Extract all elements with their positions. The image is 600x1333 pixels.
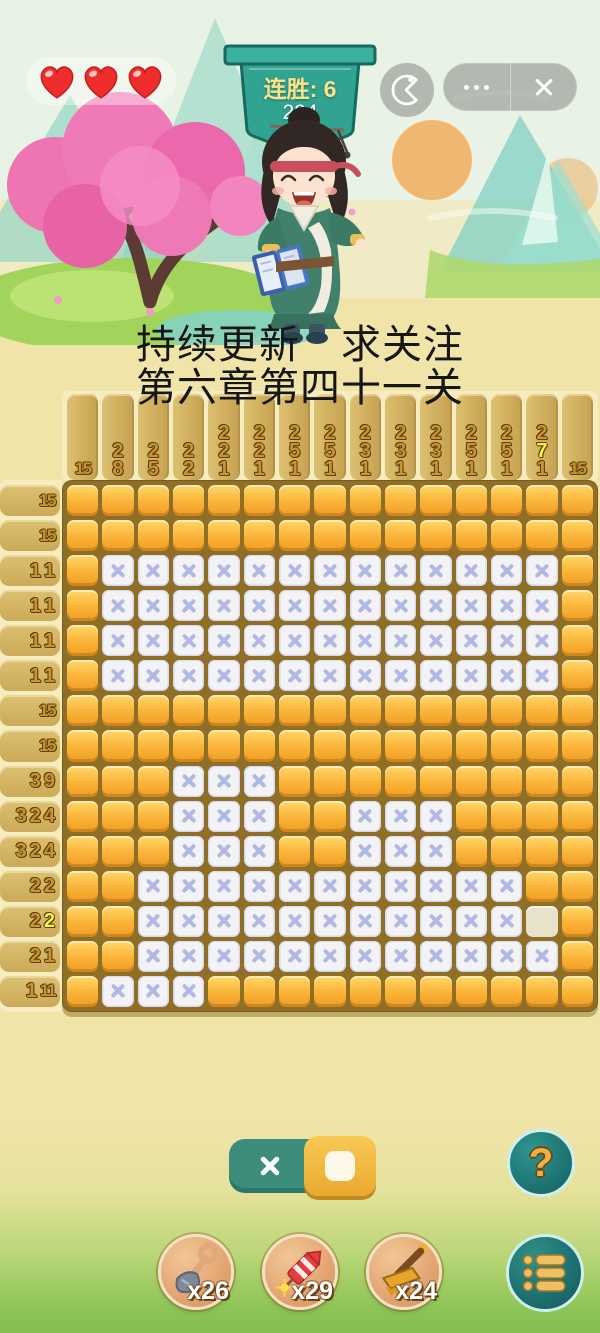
grid-cell[interactable]	[491, 695, 522, 726]
heart-icon	[123, 60, 167, 102]
grid-cell[interactable]	[385, 801, 416, 832]
grid-cell[interactable]	[138, 766, 169, 797]
grid-cell[interactable]	[173, 766, 204, 797]
grid-cell[interactable]	[67, 801, 98, 832]
grid-cell[interactable]	[138, 520, 169, 551]
grid-cell[interactable]	[420, 660, 451, 691]
grid-cell[interactable]	[102, 766, 133, 797]
grid-cell[interactable]	[350, 625, 381, 656]
firecracker-count: x29	[291, 1277, 333, 1306]
grid-cell[interactable]	[562, 590, 593, 621]
grid-cell[interactable]	[456, 660, 487, 691]
grid-cell[interactable]	[138, 660, 169, 691]
help-label: ?	[529, 1141, 553, 1186]
grid-cell[interactable]	[67, 555, 98, 586]
grid-cell[interactable]	[244, 555, 275, 586]
row-clue-bar: 324	[0, 836, 60, 867]
grid-cell[interactable]	[67, 625, 98, 656]
grid-cell[interactable]	[208, 625, 239, 656]
row-clue-bar: 11	[0, 660, 60, 691]
grid-cell[interactable]	[562, 730, 593, 761]
grid-cell[interactable]	[279, 695, 310, 726]
grid-cell[interactable]	[102, 555, 133, 586]
grid-cell[interactable]	[350, 660, 381, 691]
grid-cell[interactable]	[208, 801, 239, 832]
grid-cell[interactable]	[279, 555, 310, 586]
grid-cell[interactable]	[314, 660, 345, 691]
clue-number: 2	[30, 947, 41, 965]
grid-cell[interactable]	[420, 625, 451, 656]
firecracker-tool-button[interactable]: x29	[262, 1234, 338, 1310]
grid-cell[interactable]	[456, 730, 487, 761]
grid-cell[interactable]	[138, 695, 169, 726]
grid-cell[interactable]	[562, 660, 593, 691]
grid-cell[interactable]	[138, 730, 169, 761]
grid-cell[interactable]	[279, 801, 310, 832]
clue-number: 3	[16, 807, 27, 825]
grid-cell[interactable]	[350, 801, 381, 832]
clue-number: 1	[395, 460, 406, 478]
grid-cell[interactable]	[526, 766, 557, 797]
grid-cell[interactable]	[279, 730, 310, 761]
grid-cell[interactable]	[173, 695, 204, 726]
grid-cell[interactable]	[208, 906, 239, 937]
clue-number: 15	[569, 460, 585, 478]
grid-cell[interactable]	[102, 660, 133, 691]
grid-cell[interactable]	[420, 766, 451, 797]
row-clue-bar: 11	[0, 590, 60, 621]
clue-number: 1	[360, 460, 371, 478]
grid-cell[interactable]	[314, 976, 345, 1007]
grid-cell[interactable]	[138, 976, 169, 1007]
clue-number: 1	[324, 460, 335, 478]
grid-cell[interactable]	[138, 625, 169, 656]
grid-cell[interactable]	[350, 836, 381, 867]
help-button[interactable]: ?	[507, 1129, 575, 1197]
grid-cell[interactable]	[350, 485, 381, 516]
grid-cell[interactable]	[420, 695, 451, 726]
grid-cell[interactable]	[456, 520, 487, 551]
grid-cell[interactable]	[350, 906, 381, 937]
grid-cell[interactable]	[456, 590, 487, 621]
grid-cell[interactable]	[491, 730, 522, 761]
grid-cell[interactable]	[102, 941, 133, 972]
grid-cell[interactable]	[562, 871, 593, 902]
grid-cell[interactable]	[456, 555, 487, 586]
grid-cell[interactable]	[279, 625, 310, 656]
clue-number: 1	[30, 667, 41, 685]
grid-cell[interactable]	[102, 801, 133, 832]
grid-cell[interactable]	[102, 520, 133, 551]
grid-cell[interactable]	[208, 590, 239, 621]
grid-cell[interactable]	[173, 871, 204, 902]
row-clue-bar: 11	[0, 625, 60, 656]
grid-cell[interactable]	[208, 520, 239, 551]
grid-cell[interactable]	[102, 871, 133, 902]
grid-cell[interactable]	[385, 941, 416, 972]
heart-icon	[79, 60, 123, 102]
grid-cell[interactable]	[244, 836, 275, 867]
grid-cell[interactable]	[138, 485, 169, 516]
grid-cell[interactable]	[456, 871, 487, 902]
close-button[interactable]	[511, 63, 578, 111]
grid-cell[interactable]	[173, 625, 204, 656]
grid-cell[interactable]	[279, 871, 310, 902]
grid-cell[interactable]	[385, 555, 416, 586]
grid-cell[interactable]	[138, 941, 169, 972]
grid-cell[interactable]	[491, 871, 522, 902]
grid-cell[interactable]	[385, 906, 416, 937]
grid-cell[interactable]	[279, 766, 310, 797]
clue-number: 2	[30, 807, 41, 825]
app-capsule	[443, 63, 577, 111]
grid-cell[interactable]	[420, 941, 451, 972]
grid-cell[interactable]	[314, 941, 345, 972]
grid-cell[interactable]	[562, 766, 593, 797]
more-button[interactable]	[443, 63, 511, 111]
grid-cell[interactable]	[491, 906, 522, 937]
grid-cell[interactable]	[456, 695, 487, 726]
grid-cell[interactable]	[138, 906, 169, 937]
row-clue-bar: 11	[0, 555, 60, 586]
grid-cell[interactable]	[526, 555, 557, 586]
grid-cell[interactable]	[456, 766, 487, 797]
streak-label: 连胜: 6	[221, 70, 379, 104]
clue-number: 1	[44, 667, 55, 685]
grid-cell[interactable]	[173, 555, 204, 586]
grid-cell[interactable]	[102, 695, 133, 726]
grid-cell[interactable]	[208, 555, 239, 586]
grid-cell[interactable]	[526, 485, 557, 516]
grid-cell[interactable]	[420, 520, 451, 551]
grid-cell[interactable]	[173, 941, 204, 972]
grid-cell[interactable]	[244, 906, 275, 937]
rake-tool-button[interactable]: x24	[366, 1234, 442, 1310]
grid-cell[interactable]	[314, 871, 345, 902]
grid-cell[interactable]	[491, 660, 522, 691]
clue-number: 8	[112, 460, 123, 478]
grid-cell[interactable]	[314, 766, 345, 797]
grid-cell[interactable]	[456, 836, 487, 867]
grid-cell[interactable]	[562, 836, 593, 867]
grid-cell[interactable]	[102, 590, 133, 621]
grid-cell[interactable]	[244, 660, 275, 691]
grid-cell[interactable]	[244, 625, 275, 656]
grid-cell[interactable]	[526, 941, 557, 972]
grid-cell[interactable]	[420, 801, 451, 832]
grid-cell[interactable]	[314, 730, 345, 761]
grid-cell[interactable]	[208, 941, 239, 972]
shovel-tool-button[interactable]: x26	[158, 1234, 234, 1310]
grid-cell[interactable]	[562, 695, 593, 726]
clue-number: 5	[148, 460, 159, 478]
grid-cell[interactable]	[350, 871, 381, 902]
grid-cell[interactable]	[208, 660, 239, 691]
grid-cell[interactable]	[244, 801, 275, 832]
clue-number: 1	[501, 460, 512, 478]
grid-cell[interactable]	[314, 590, 345, 621]
grid-cell[interactable]	[173, 730, 204, 761]
grid-cell[interactable]	[491, 941, 522, 972]
grid-cell[interactable]	[244, 520, 275, 551]
grid-cell[interactable]	[102, 906, 133, 937]
row-clue-bar: 22	[0, 871, 60, 902]
row-clue-bar: 21	[0, 941, 60, 972]
grid-cell[interactable]	[67, 520, 98, 551]
grid-cell[interactable]	[456, 941, 487, 972]
grid-cell[interactable]	[314, 836, 345, 867]
grid-cell[interactable]	[102, 485, 133, 516]
clue-number: 1	[254, 460, 265, 478]
grid-cell[interactable]	[350, 520, 381, 551]
grid-cell[interactable]	[491, 766, 522, 797]
grid-cell[interactable]	[385, 976, 416, 1007]
grid-cell[interactable]	[420, 485, 451, 516]
grid-cell[interactable]	[244, 941, 275, 972]
grid-cell[interactable]	[244, 871, 275, 902]
grid-cell[interactable]	[67, 485, 98, 516]
grid-cell[interactable]	[350, 695, 381, 726]
grid-cell[interactable]	[491, 520, 522, 551]
grid-cell[interactable]	[208, 695, 239, 726]
grid-cell[interactable]	[244, 766, 275, 797]
grid-cell[interactable]	[385, 730, 416, 761]
clue-number: 2	[44, 877, 55, 895]
row-clue-bar: 15	[0, 520, 60, 551]
row-clue-bar: 324	[0, 801, 60, 832]
grid-cell[interactable]	[385, 520, 416, 551]
grid-cell[interactable]	[385, 590, 416, 621]
grid-cell[interactable]	[562, 906, 593, 937]
grid-cell[interactable]	[526, 625, 557, 656]
grid-cell[interactable]	[279, 976, 310, 1007]
grid-cell[interactable]	[279, 836, 310, 867]
clue-number: 9	[44, 772, 55, 790]
grid-cell[interactable]	[173, 906, 204, 937]
grid-cell[interactable]	[350, 766, 381, 797]
grid-cell[interactable]	[208, 766, 239, 797]
grid-cell[interactable]	[279, 485, 310, 516]
clue-number: 3	[16, 842, 27, 860]
grid-cell[interactable]	[456, 906, 487, 937]
grid-cell[interactable]	[244, 590, 275, 621]
grid-cell[interactable]	[314, 485, 345, 516]
character-illustration	[212, 100, 388, 345]
grid-cell[interactable]	[385, 695, 416, 726]
game-screen: 连胜: 6 224	[0, 0, 600, 1333]
grid-cell[interactable]	[420, 871, 451, 902]
clue-number: 15	[75, 460, 91, 478]
grid-cell[interactable]	[420, 906, 451, 937]
grid-cell[interactable]	[526, 801, 557, 832]
grid-cell[interactable]	[138, 836, 169, 867]
rake-count: x24	[395, 1277, 437, 1306]
grid-cell[interactable]	[420, 555, 451, 586]
clue-number: 2	[30, 877, 41, 895]
grid-cell[interactable]	[456, 976, 487, 1007]
pacman-icon	[382, 65, 432, 115]
grid-cell[interactable]	[562, 520, 593, 551]
grid-cell[interactable]	[314, 555, 345, 586]
grid-cell[interactable]	[138, 590, 169, 621]
grid-cell[interactable]	[314, 625, 345, 656]
row-clue-bar: 15	[0, 730, 60, 761]
grid-cell[interactable]	[562, 625, 593, 656]
clue-number: 1	[26, 982, 37, 1000]
grid-cell[interactable]	[562, 941, 593, 972]
grid-cell[interactable]	[279, 906, 310, 937]
menu-list-icon	[522, 1252, 568, 1294]
grid-cell[interactable]	[102, 836, 133, 867]
grid-cell[interactable]	[350, 730, 381, 761]
clue-number: 1	[30, 632, 41, 650]
pacman-button[interactable]	[380, 63, 434, 117]
grid-cell[interactable]	[102, 730, 133, 761]
clue-number: 15	[39, 737, 55, 755]
grid-cell[interactable]	[67, 906, 98, 937]
grid-cell[interactable]	[67, 695, 98, 726]
grid-cell[interactable]	[102, 976, 133, 1007]
grid-cell[interactable]	[526, 906, 557, 937]
grid-cell[interactable]	[562, 976, 593, 1007]
grid-cell[interactable]	[350, 555, 381, 586]
clue-number: 1	[466, 460, 477, 478]
grid-cell[interactable]	[173, 485, 204, 516]
clue-number: 1	[218, 460, 229, 478]
clue-number: 2	[44, 912, 55, 930]
grid-cell[interactable]	[420, 976, 451, 1007]
grid-cell[interactable]	[102, 625, 133, 656]
grid-cell[interactable]	[244, 730, 275, 761]
grid-cell[interactable]	[491, 625, 522, 656]
grid-cell[interactable]	[138, 801, 169, 832]
clue-number: 1	[44, 632, 55, 650]
grid-cell[interactable]	[67, 590, 98, 621]
grid-cell[interactable]	[67, 660, 98, 691]
clue-number: 1	[44, 562, 55, 580]
grid-cell[interactable]	[456, 801, 487, 832]
grid-cell[interactable]	[208, 730, 239, 761]
grid-cell[interactable]	[385, 660, 416, 691]
grid-cell[interactable]	[526, 695, 557, 726]
grid-cell[interactable]	[526, 520, 557, 551]
grid-cell[interactable]	[138, 555, 169, 586]
grid-cell[interactable]	[491, 590, 522, 621]
grid-cell[interactable]	[138, 871, 169, 902]
grid-cell[interactable]	[173, 660, 204, 691]
grid-cell[interactable]	[491, 976, 522, 1007]
grid-cell[interactable]	[244, 976, 275, 1007]
grid-cell[interactable]	[385, 871, 416, 902]
grid-cell[interactable]	[526, 590, 557, 621]
grid-cell[interactable]	[173, 976, 204, 1007]
grid-cell[interactable]	[244, 695, 275, 726]
clue-number: 11	[40, 982, 55, 1000]
grid-cell[interactable]	[67, 766, 98, 797]
grid-cell[interactable]	[244, 485, 275, 516]
grid-cell[interactable]	[279, 520, 310, 551]
grid-cell[interactable]	[279, 660, 310, 691]
clue-number: 1	[30, 562, 41, 580]
grid-cell[interactable]	[526, 660, 557, 691]
grid-cell[interactable]	[173, 520, 204, 551]
menu-button[interactable]	[506, 1234, 584, 1312]
promo-line-1: 持续更新 求关注	[0, 324, 600, 367]
grid-cell[interactable]	[420, 590, 451, 621]
grid-cell[interactable]	[420, 730, 451, 761]
grid-cell[interactable]	[491, 485, 522, 516]
row-clues: 151511111111151539324324222221111	[0, 480, 62, 1012]
grid-cell[interactable]	[385, 766, 416, 797]
lives-indicator	[26, 57, 176, 105]
grid-cell[interactable]	[562, 555, 593, 586]
clue-number: 4	[44, 807, 55, 825]
grid-cell[interactable]	[208, 836, 239, 867]
grid-cell[interactable]	[314, 520, 345, 551]
clue-number: 2	[183, 460, 194, 478]
grid-cell[interactable]	[385, 625, 416, 656]
grid-cell[interactable]	[314, 801, 345, 832]
grid-cell[interactable]	[208, 976, 239, 1007]
grid-cell[interactable]	[350, 941, 381, 972]
grid-cell[interactable]	[314, 695, 345, 726]
grid-cell[interactable]	[208, 485, 239, 516]
grid-cell[interactable]	[526, 871, 557, 902]
clue-number: 15	[39, 702, 55, 720]
clue-number: 1	[30, 597, 41, 615]
grid-cell[interactable]	[385, 836, 416, 867]
grid-cell[interactable]	[491, 836, 522, 867]
clue-number: 3	[30, 772, 41, 790]
grid-cell[interactable]	[526, 976, 557, 1007]
grid-cell[interactable]	[279, 941, 310, 972]
grid-cell[interactable]	[385, 485, 416, 516]
grid-cell[interactable]	[526, 836, 557, 867]
clue-number: 1	[536, 460, 547, 478]
grid-cell[interactable]	[208, 871, 239, 902]
clue-number: 1	[430, 460, 441, 478]
clue-number: 4	[44, 842, 55, 860]
row-clue-bar: 39	[0, 766, 60, 797]
grid-cell[interactable]	[173, 801, 204, 832]
clue-number: 1	[44, 947, 55, 965]
grid-cell[interactable]	[350, 590, 381, 621]
grid-cell[interactable]	[456, 485, 487, 516]
grid-cell[interactable]	[279, 590, 310, 621]
grid-cell[interactable]	[173, 590, 204, 621]
row-clue-bar: 22	[0, 906, 60, 937]
grid-cell[interactable]	[562, 801, 593, 832]
grid-cell[interactable]	[67, 976, 98, 1007]
grid-cell[interactable]	[67, 941, 98, 972]
grid-cell[interactable]	[562, 485, 593, 516]
grid-cell[interactable]	[456, 625, 487, 656]
grid-cell[interactable]	[173, 836, 204, 867]
grid-cell[interactable]	[67, 730, 98, 761]
grid-cell[interactable]	[526, 730, 557, 761]
grid-cell[interactable]	[491, 801, 522, 832]
heart-icon	[35, 60, 79, 102]
clue-number: 15	[39, 527, 55, 545]
grid-cell[interactable]	[420, 836, 451, 867]
mark-mode-toggle[interactable]	[229, 1139, 373, 1193]
grid-cell[interactable]	[67, 836, 98, 867]
grid-cell[interactable]	[314, 906, 345, 937]
grid-cell[interactable]	[350, 976, 381, 1007]
grid-cell[interactable]	[67, 871, 98, 902]
clue-number: 2	[30, 912, 41, 930]
grid-cell[interactable]	[491, 555, 522, 586]
